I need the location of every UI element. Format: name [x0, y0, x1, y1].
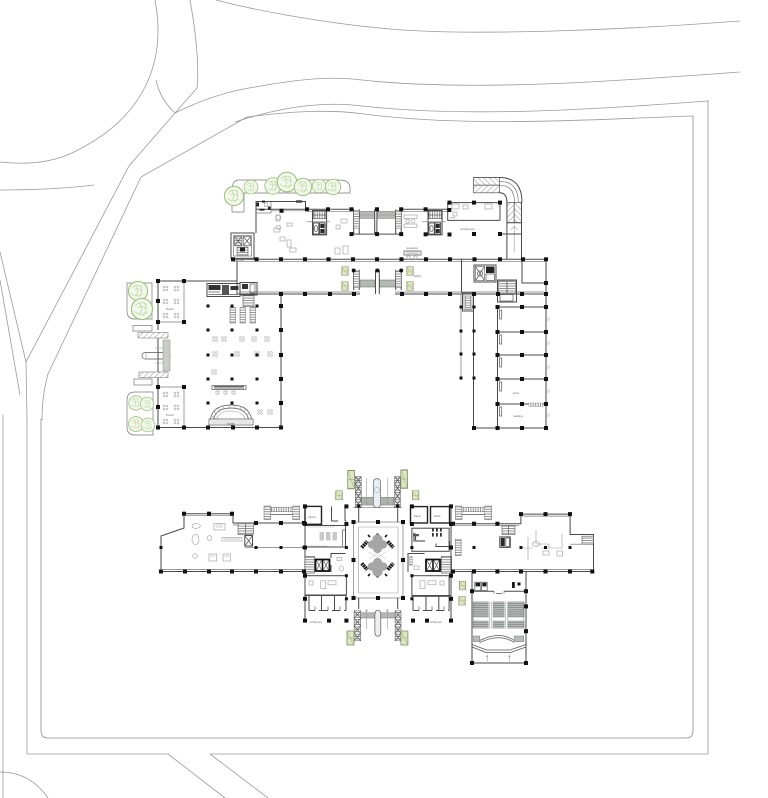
svg-text:loading: loading [513, 414, 523, 418]
svg-text:Porch: Porch [166, 307, 174, 311]
svg-text:bank: bank [434, 514, 441, 518]
svg-text:whirlpool: whirlpool [310, 620, 322, 624]
svg-text:stage: stage [227, 422, 235, 426]
svg-text:conference: conference [460, 227, 475, 231]
svg-text:bank: bank [414, 514, 421, 518]
svg-text:Porch: Porch [166, 413, 174, 417]
svg-text:lobby: lobby [414, 274, 422, 278]
svg-text:777: 777 [450, 216, 455, 220]
svg-text:reception: reception [406, 246, 419, 250]
svg-text:Apart: Apart [309, 515, 316, 519]
svg-text:whirlpool: whirlpool [430, 620, 442, 624]
svg-text:store: store [513, 391, 520, 395]
